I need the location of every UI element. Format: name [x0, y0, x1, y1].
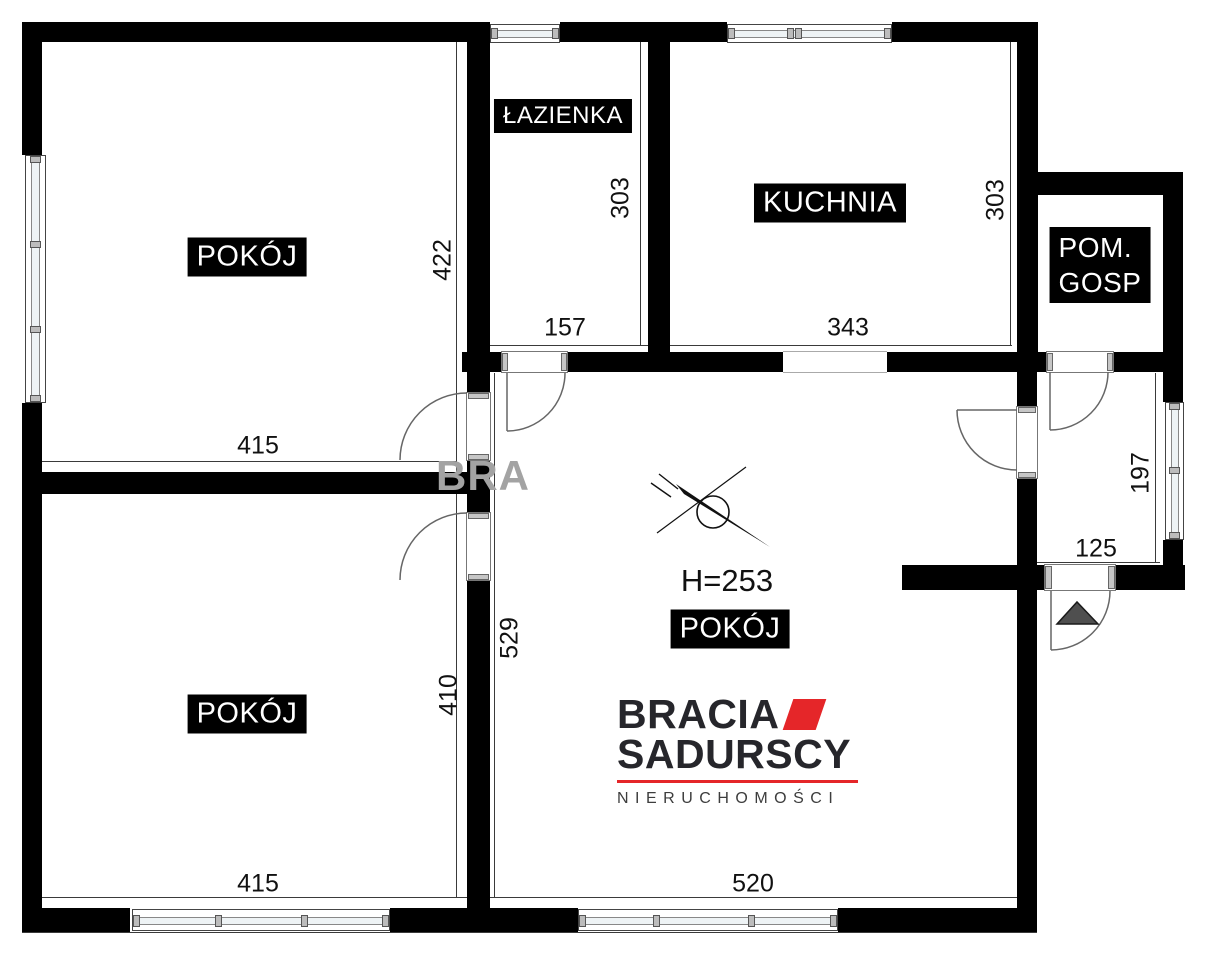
- door-swing-arc: [400, 513, 467, 580]
- logo-text-sadurscy: SADURSCY: [617, 734, 858, 774]
- entrance-arrow-icon: [1057, 602, 1098, 624]
- dim-top-left-height: 422: [429, 239, 458, 281]
- dim-hallway-width: 125: [1075, 535, 1117, 564]
- room-label-top-left: POKÓJ: [188, 238, 307, 277]
- dim-bathroom-width: 157: [544, 314, 586, 343]
- ceiling-height-note: H=253: [681, 563, 773, 599]
- dim-center-width: 520: [732, 870, 774, 899]
- dim-top-left-width: 415: [237, 432, 279, 461]
- dim-bottom-left-width: 415: [237, 870, 279, 899]
- logo-text-nieruchomosci: NIERUCHOMOŚCI: [617, 790, 858, 808]
- watermark-text: BRA: [436, 452, 530, 500]
- door-swing-arc: [507, 373, 565, 431]
- dim-kitchen-height: 303: [982, 179, 1011, 221]
- dim-hallway-height: 197: [1127, 452, 1156, 494]
- plan-symbols-layer: [0, 0, 1217, 960]
- dim-bottom-left-height: 410: [435, 674, 464, 716]
- room-label-bottom-left: POKÓJ: [188, 695, 307, 734]
- logo-row-1: BRACIA: [617, 694, 858, 734]
- agency-logo: BRACIA SADURSCY NIERUCHOMOŚCI: [617, 694, 858, 808]
- room-label-bathroom: ŁAZIENKA: [494, 99, 632, 133]
- door-swing-arc: [1050, 372, 1108, 430]
- room-label-utility-line1: POM.: [1059, 230, 1142, 265]
- floor-plan: POKÓJ ŁAZIENKA KUCHNIA POM. GOSP POKÓJ P…: [0, 0, 1217, 960]
- logo-red-parallelogram-icon: [783, 699, 827, 730]
- logo-text-bracia: BRACIA: [617, 694, 779, 734]
- room-label-utility: POM. GOSP: [1050, 227, 1151, 303]
- dim-kitchen-width: 343: [827, 314, 869, 343]
- room-label-kitchen: KUCHNIA: [754, 184, 906, 223]
- room-label-utility-line2: GOSP: [1059, 265, 1142, 300]
- door-swing-arc: [957, 410, 1017, 470]
- north-arrow-icon: [651, 467, 770, 547]
- dim-bathroom-height: 303: [607, 177, 636, 219]
- logo-red-divider: [617, 780, 858, 783]
- room-label-center: POKÓJ: [671, 610, 790, 649]
- dim-center-height: 529: [496, 617, 525, 659]
- door-swing-arc: [400, 393, 467, 460]
